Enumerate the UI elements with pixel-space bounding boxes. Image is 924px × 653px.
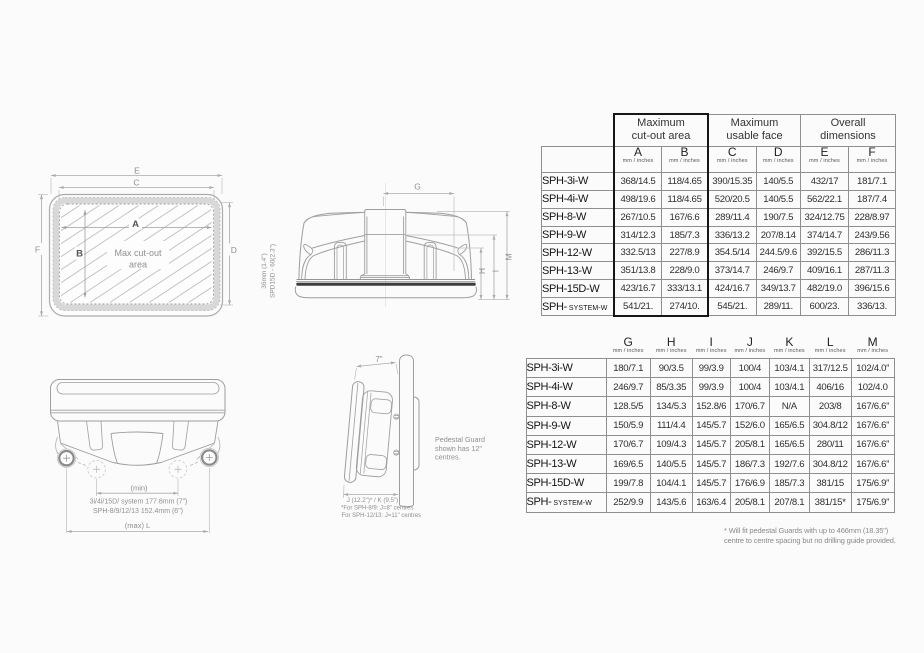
svg-text:Pedestal Guard: Pedestal Guard (435, 435, 485, 444)
svg-text:E: E (134, 166, 140, 176)
svg-text:7": 7" (375, 355, 382, 364)
svg-text:A: A (132, 219, 139, 230)
svg-text:(max) L: (max) L (125, 521, 150, 530)
svg-text:(min): (min) (130, 484, 148, 493)
svg-text:D: D (231, 245, 237, 255)
svg-text:area: area (129, 260, 147, 270)
svg-text:I: I (491, 270, 501, 272)
svg-text:J (12.2")* / K (9.5"): J (12.2")* / K (9.5") (347, 497, 399, 504)
svg-text:36mm (1.4"): 36mm (1.4") (261, 253, 268, 289)
svg-text:SPD15D - 60(2.3"): SPD15D - 60(2.3") (270, 244, 277, 298)
svg-text:B: B (76, 249, 83, 260)
svg-text:3i/4i/15D/ system 177.8mm (7"): 3i/4i/15D/ system 177.8mm (7") (90, 499, 188, 506)
svg-text:H: H (477, 268, 487, 274)
svg-text:centres.: centres. (435, 453, 461, 462)
svg-text:shown has 12": shown has 12" (435, 444, 482, 453)
svg-text:G: G (414, 182, 421, 192)
svg-text:Max cut-out: Max cut-out (114, 248, 162, 258)
svg-text:For SPH-12/13: J=11" centres: For SPH-12/13: J=11" centres (342, 513, 422, 519)
svg-text:SPH-8/9/12/13 152.4mm (6"): SPH-8/9/12/13 152.4mm (6") (93, 508, 183, 515)
svg-text:C: C (133, 178, 139, 188)
svg-text:M: M (504, 253, 514, 260)
svg-text:F: F (35, 245, 40, 255)
svg-text:*For SPH-8/9: J=8" centres: *For SPH-8/9: J=8" centres (341, 506, 413, 512)
